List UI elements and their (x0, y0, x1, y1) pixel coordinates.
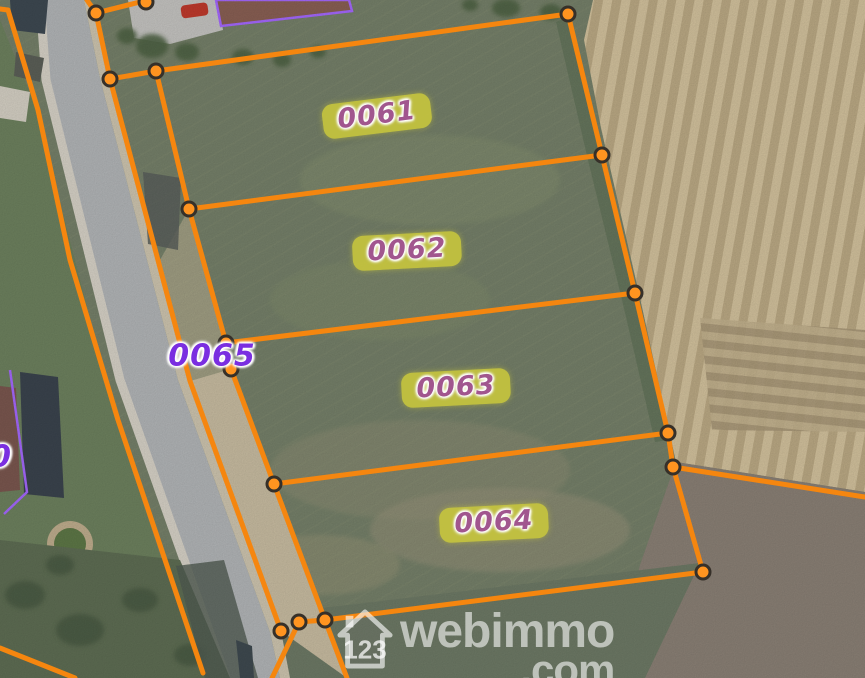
parcel-vertex (182, 202, 196, 216)
parcel-vertex (561, 7, 575, 21)
parcel-vertex (267, 477, 281, 491)
parcel-vertex (139, 0, 153, 9)
parcel-vertex (628, 286, 642, 300)
parcel-vertex (89, 6, 103, 20)
parcel-vertex (696, 565, 710, 579)
aerial-map: 0061 0062 0063 0064 0065 0 123 webimmo .… (0, 0, 865, 678)
parcel-vertex (224, 362, 238, 376)
parcel-vertex (595, 148, 609, 162)
parcel-vertex (666, 460, 680, 474)
parcel-vertex (274, 624, 288, 638)
parcel-vertex (661, 426, 675, 440)
aerial-basemap (0, 0, 865, 678)
parcel-vertex (149, 64, 163, 78)
parcel-vertex (103, 72, 117, 86)
parcel-vertex (318, 613, 332, 627)
parcel-vertex (219, 336, 233, 350)
parcel-vertex (292, 615, 306, 629)
